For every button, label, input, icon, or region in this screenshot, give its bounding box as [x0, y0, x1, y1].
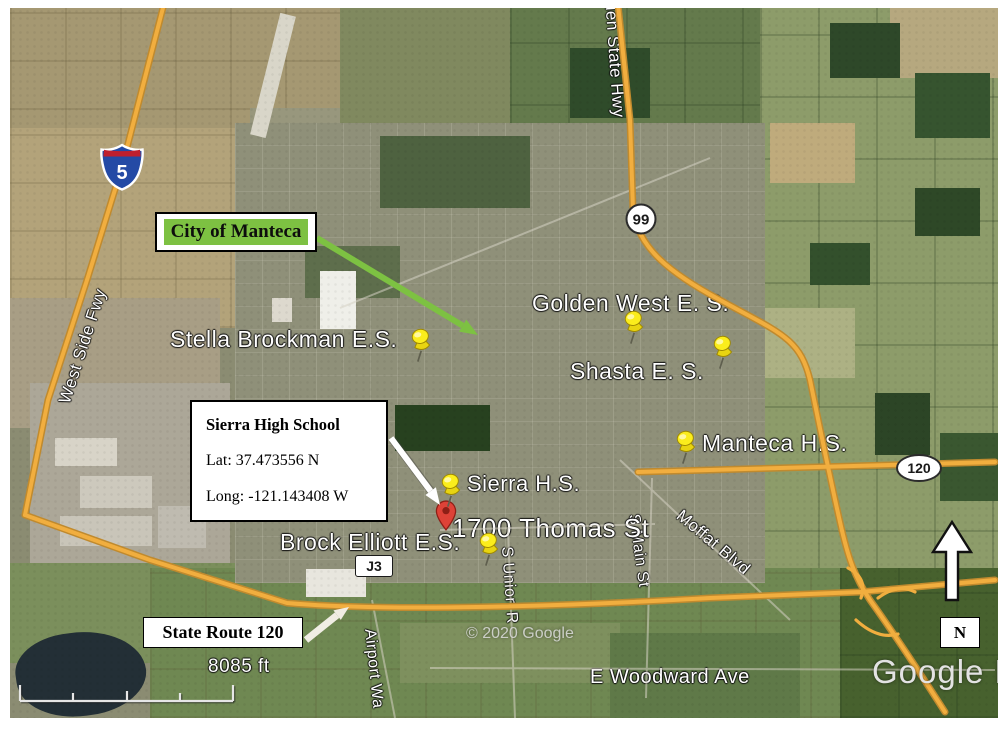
road-label-e-woodward-ave: E Woodward Ave: [590, 666, 750, 689]
satellite-map-canvas[interactable]: © 2020 Google Google Ea lden State Hwy W…: [10, 8, 998, 718]
county-j3-shield: J3: [355, 555, 393, 577]
label-shasta-es: Shasta E. S.: [570, 358, 704, 385]
label-stella-brockman-es: Stella Brockman E.S.: [170, 326, 397, 353]
north-label-box: N: [940, 617, 980, 648]
sr-120-shield: 120: [895, 453, 943, 483]
city-of-manteca-callout: City of Manteca: [155, 212, 317, 252]
sierra-callout-title: Sierra High School: [206, 415, 372, 435]
sr-99-shield: 99: [624, 202, 658, 236]
sierra-callout-longitude: Long: -121.143408 W: [206, 488, 372, 506]
scale-distance-label: 8085 ft: [208, 656, 270, 678]
svg-text:99: 99: [633, 212, 650, 229]
state-route-120-callout: State Route 120: [143, 617, 303, 648]
sierra-high-school-callout: Sierra High School Lat: 37.473556 N Long…: [190, 400, 388, 522]
city-of-manteca-label: City of Manteca: [164, 219, 309, 245]
page: { "map": { "attribution": "© 2020 Google…: [0, 0, 1005, 731]
svg-text:5: 5: [116, 162, 127, 184]
google-attribution: © 2020 Google: [466, 625, 574, 643]
svg-text:120: 120: [907, 460, 931, 476]
label-brock-elliott-es: Brock Elliott E.S.: [280, 529, 460, 556]
label-sierra-hs: Sierra H.S.: [467, 471, 580, 497]
google-earth-logo: Google Ea: [872, 653, 998, 691]
sierra-callout-latitude: Lat: 37.473556 N: [206, 452, 372, 470]
label-manteca-hs: Manteca H.S.: [702, 430, 847, 457]
interstate-5-shield: 5: [99, 143, 145, 191]
